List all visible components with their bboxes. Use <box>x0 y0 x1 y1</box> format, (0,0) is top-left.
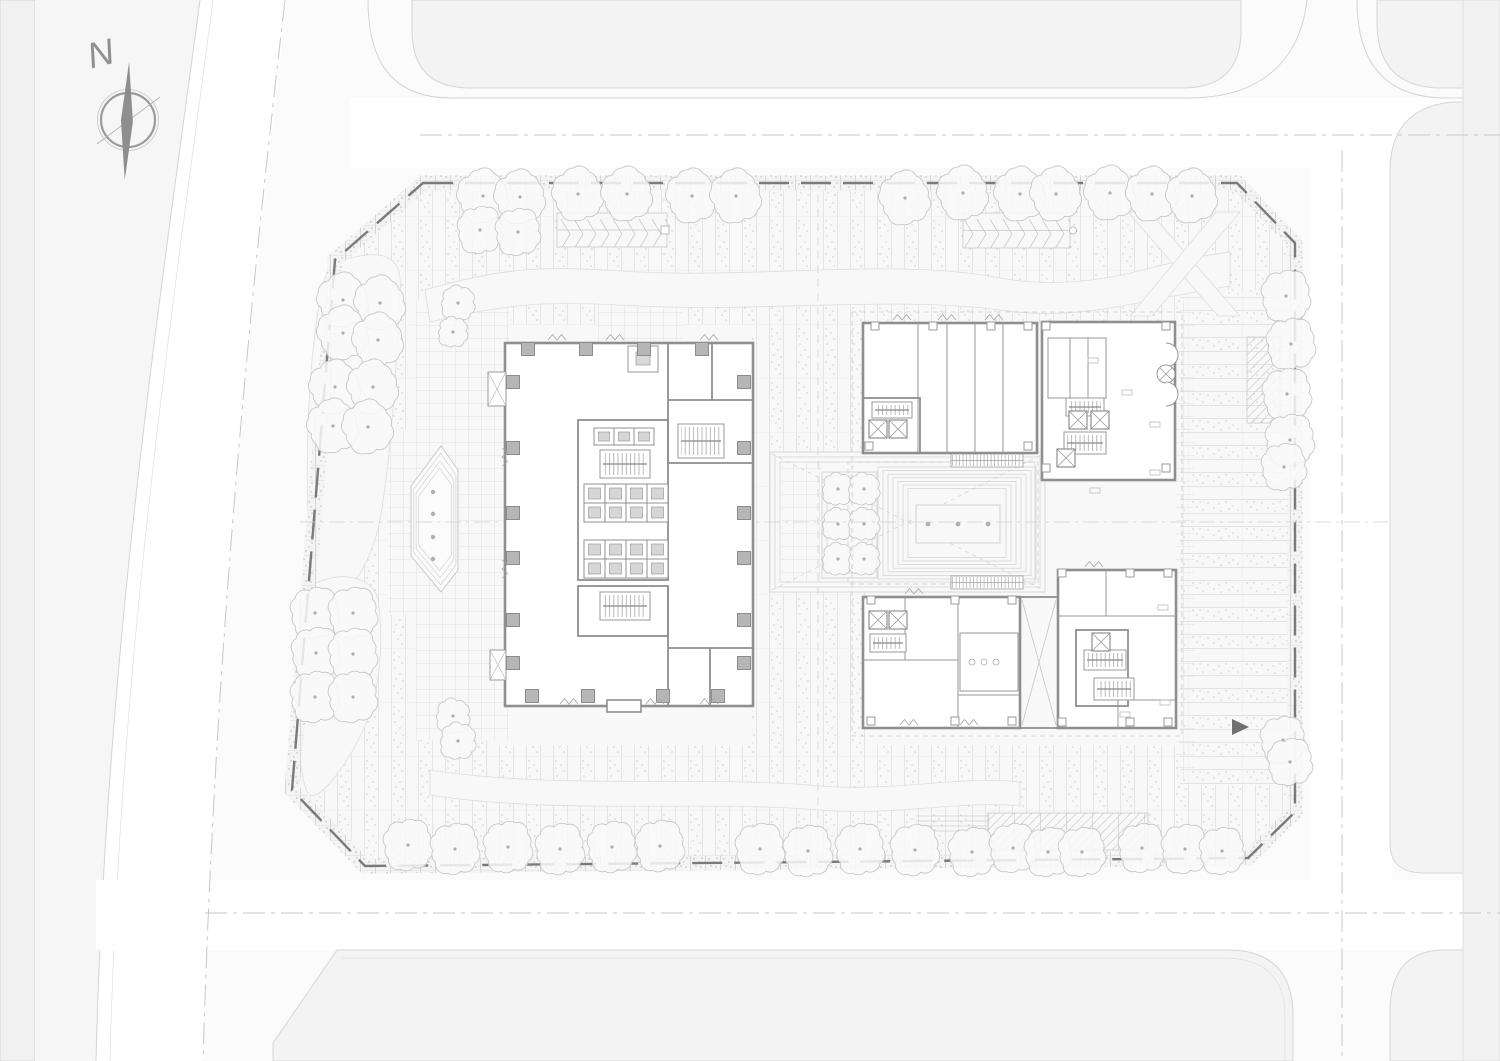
tree-center-mark <box>1288 438 1291 441</box>
south-parcel <box>273 950 1293 1061</box>
tree-center-mark <box>518 195 521 198</box>
structural-column-small <box>951 596 959 604</box>
elevator-car <box>589 488 601 499</box>
tree-center-mark <box>913 848 916 851</box>
tree-center-mark <box>481 194 484 197</box>
tree-center-mark <box>1282 465 1285 468</box>
tree-center-mark <box>1046 850 1049 853</box>
tree-center-mark <box>451 330 454 333</box>
structural-column-small <box>1162 322 1170 330</box>
tree-center-mark <box>1284 294 1287 297</box>
structural-column <box>696 343 709 356</box>
elevator-car <box>631 563 643 574</box>
tree-center-mark <box>1140 846 1143 849</box>
tree-center-mark <box>858 847 861 850</box>
structural-column-small <box>1126 569 1134 577</box>
tree-center-mark <box>836 487 839 490</box>
ramp-end-post <box>1070 227 1077 234</box>
tree-center-mark <box>1018 192 1021 195</box>
tree-center-mark <box>1289 342 1292 345</box>
structural-column <box>507 442 520 455</box>
tree-center-mark <box>862 487 865 490</box>
structural-column <box>507 552 520 565</box>
elevator-car <box>610 544 622 555</box>
east-sidewalk-strip <box>1463 0 1500 1061</box>
structural-column-small <box>1008 596 1016 604</box>
west-tower <box>488 343 753 713</box>
terrace-fountain-jet <box>926 522 931 527</box>
structural-column <box>738 552 751 565</box>
structural-column <box>582 690 595 703</box>
structural-column <box>507 376 520 389</box>
southeast-annex <box>1058 570 1176 728</box>
tree-center-mark <box>366 425 369 428</box>
tree-center-mark <box>961 191 964 194</box>
tree-center-mark <box>625 192 628 195</box>
tree-center-mark <box>331 424 334 427</box>
ramp-end-post <box>661 226 669 234</box>
structural-column-small <box>1024 442 1032 450</box>
tree-center-mark <box>836 522 839 525</box>
tree-center-mark <box>453 847 456 850</box>
tree-center-mark <box>406 843 409 846</box>
elevator-car <box>589 507 601 518</box>
structural-column-small <box>1126 718 1134 726</box>
west-tower-outline <box>505 343 753 706</box>
west-sidewalk-strip <box>0 0 35 1061</box>
tree-center-mark <box>341 331 344 334</box>
elevator-car <box>639 432 650 441</box>
structural-column <box>738 657 751 670</box>
elevator-car <box>619 432 630 441</box>
structural-column <box>507 657 520 670</box>
water-fountain-jet <box>431 512 435 516</box>
tree-center-mark <box>690 194 693 197</box>
structural-column-small <box>929 322 937 330</box>
tree-center-mark <box>378 301 381 304</box>
structural-column-small <box>1164 569 1172 577</box>
structural-column <box>507 507 520 520</box>
tree-center-mark <box>576 192 579 195</box>
south-road <box>96 880 1500 950</box>
water-fountain-jet <box>431 557 435 561</box>
structural-column <box>738 614 751 627</box>
tree-center-mark <box>1011 846 1014 849</box>
structural-column <box>507 614 520 627</box>
tree-center-mark <box>970 850 973 853</box>
tree-center-mark <box>558 847 561 850</box>
elevator-car <box>589 563 601 574</box>
tree-center-mark <box>376 338 379 341</box>
structural-column-small <box>1162 464 1170 472</box>
structural-column-small <box>1058 569 1066 577</box>
tree-center-mark <box>456 301 459 304</box>
tree-center-mark <box>734 194 737 197</box>
structural-column-small <box>951 717 959 725</box>
structural-column <box>712 690 725 703</box>
tree-center-mark <box>351 611 354 614</box>
tree-center-mark <box>351 695 354 698</box>
elevator-car <box>631 488 643 499</box>
tree-center-mark <box>333 385 336 388</box>
tree-center-mark <box>313 611 316 614</box>
structural-column-small <box>865 442 873 450</box>
structural-column <box>580 343 593 356</box>
water-fountain-jet <box>431 490 435 494</box>
east-grid-strip <box>1176 300 1194 780</box>
tree-center-mark <box>1288 760 1291 763</box>
north-parcel <box>412 0 1241 88</box>
structural-column-small <box>867 596 875 604</box>
tree-center-mark <box>506 845 509 848</box>
tree-center-mark <box>862 557 865 560</box>
elevator-car <box>631 544 643 555</box>
structural-column <box>657 690 670 703</box>
tree-center-mark <box>758 847 761 850</box>
tree-center-mark <box>371 385 374 388</box>
structural-column <box>738 376 751 389</box>
structural-column <box>522 343 535 356</box>
structural-column-small <box>1058 718 1066 726</box>
structural-column <box>738 507 751 520</box>
tree-center-mark <box>1108 191 1111 194</box>
tree-center-mark <box>341 298 344 301</box>
structural-column-small <box>987 322 995 330</box>
tree-center-mark <box>610 845 613 848</box>
tree-center-mark <box>456 739 459 742</box>
structural-column-small <box>1008 717 1016 725</box>
tree-center-mark <box>314 651 317 654</box>
site-plan-canvas: N <box>0 0 1500 1061</box>
tree-center-mark <box>1054 192 1057 195</box>
structural-column-small <box>1164 718 1172 726</box>
tree-center-mark <box>862 522 865 525</box>
elevator-car <box>652 507 664 518</box>
elevator-car <box>652 544 664 555</box>
tree-center-mark <box>1150 192 1153 195</box>
elevator-car <box>610 507 622 518</box>
tree-center-mark <box>1080 850 1083 853</box>
tree-center-mark <box>1285 392 1288 395</box>
tree-center-mark <box>836 557 839 560</box>
tree-center-mark <box>1183 847 1186 850</box>
elevator-car <box>652 488 664 499</box>
structural-column <box>738 442 751 455</box>
tree-center-mark <box>658 844 661 847</box>
structural-column <box>638 343 651 356</box>
tree-center-mark <box>451 714 454 717</box>
tree-center-mark <box>806 849 809 852</box>
elevator-car <box>610 488 622 499</box>
tree-center-mark <box>1190 194 1193 197</box>
tree-center-mark <box>1220 849 1223 852</box>
elevator-car <box>599 432 610 441</box>
east-road <box>1310 98 1392 898</box>
tree-center-mark <box>351 652 354 655</box>
south-vestibule <box>607 700 641 712</box>
tree-center-mark <box>313 695 316 698</box>
structural-column <box>526 690 539 703</box>
elevator-car <box>589 544 601 555</box>
elevator-car <box>631 507 643 518</box>
structural-column-small <box>1042 464 1050 472</box>
elevator-car <box>652 563 664 574</box>
structural-column-small <box>1042 322 1050 330</box>
tree-center-mark <box>516 230 519 233</box>
water-fountain-jet <box>431 535 435 539</box>
tree-center-mark <box>903 196 906 199</box>
structural-column-small <box>871 322 879 330</box>
structural-column-small <box>867 717 875 725</box>
tree-center-mark <box>478 228 481 231</box>
structural-column-small <box>1024 322 1032 330</box>
elevator-car <box>610 563 622 574</box>
